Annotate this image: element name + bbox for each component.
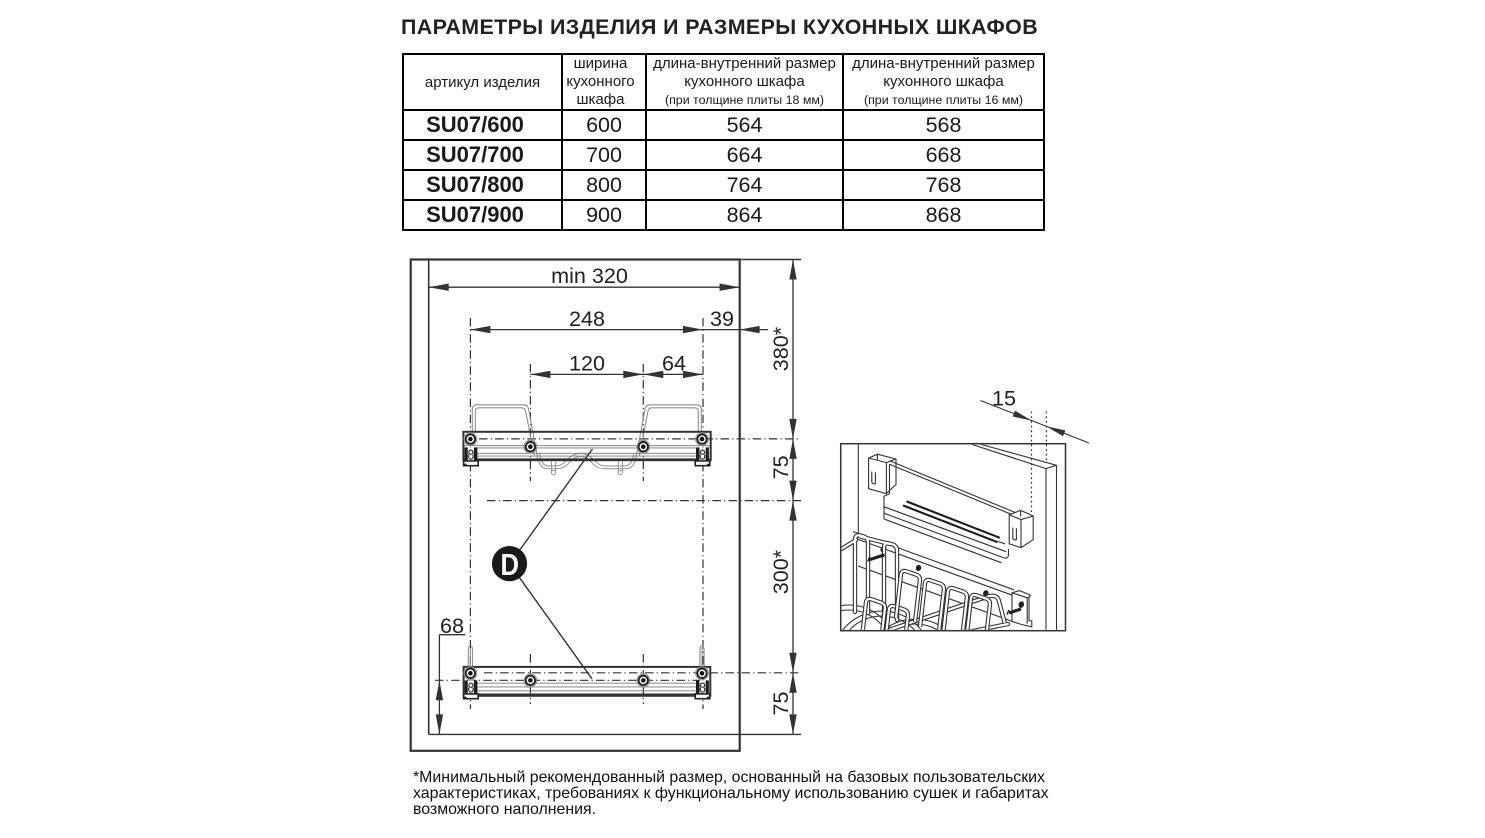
svg-text:75: 75 [768,691,793,715]
svg-text:248: 248 [569,306,605,331]
svg-text:120: 120 [569,351,605,376]
svg-text:39: 39 [710,306,734,331]
svg-text:380*: 380* [768,326,793,371]
svg-text:300*: 300* [768,549,793,594]
svg-text:75: 75 [768,455,793,479]
svg-text:64: 64 [662,351,686,376]
svg-text:min 320: min 320 [551,263,628,288]
svg-text:D: D [500,547,519,582]
svg-text:68: 68 [440,613,464,638]
